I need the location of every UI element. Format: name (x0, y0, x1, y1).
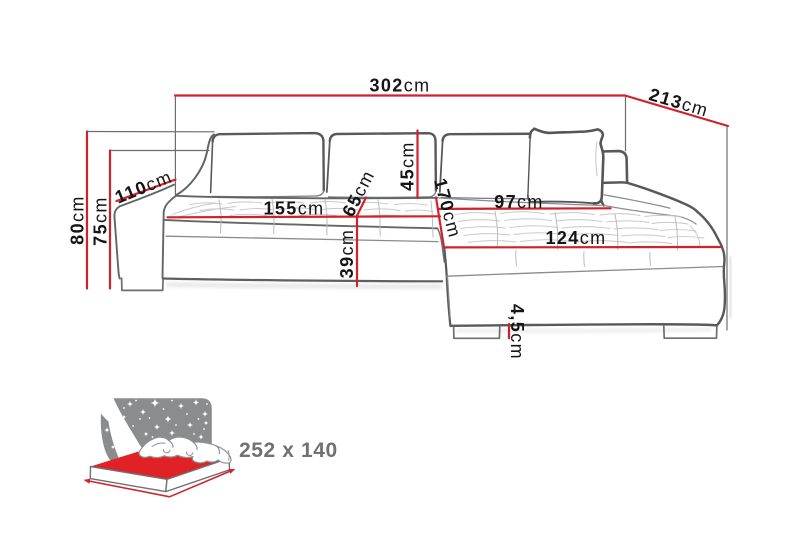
svg-text:155cm: 155cm (263, 198, 324, 218)
svg-text:97cm: 97cm (494, 192, 544, 212)
svg-text:213cm: 213cm (647, 84, 711, 121)
svg-text:75cm: 75cm (91, 196, 111, 246)
svg-text:302cm: 302cm (369, 76, 430, 96)
svg-text:80cm: 80cm (67, 195, 87, 245)
svg-text:252 x 140: 252 x 140 (239, 439, 338, 462)
svg-text:39cm: 39cm (337, 229, 357, 279)
svg-text:45cm: 45cm (398, 141, 418, 191)
svg-text:65cm: 65cm (338, 167, 378, 220)
svg-text:4,5cm: 4,5cm (507, 304, 527, 360)
svg-text:110cm: 110cm (112, 166, 175, 207)
svg-text:124cm: 124cm (545, 228, 606, 248)
